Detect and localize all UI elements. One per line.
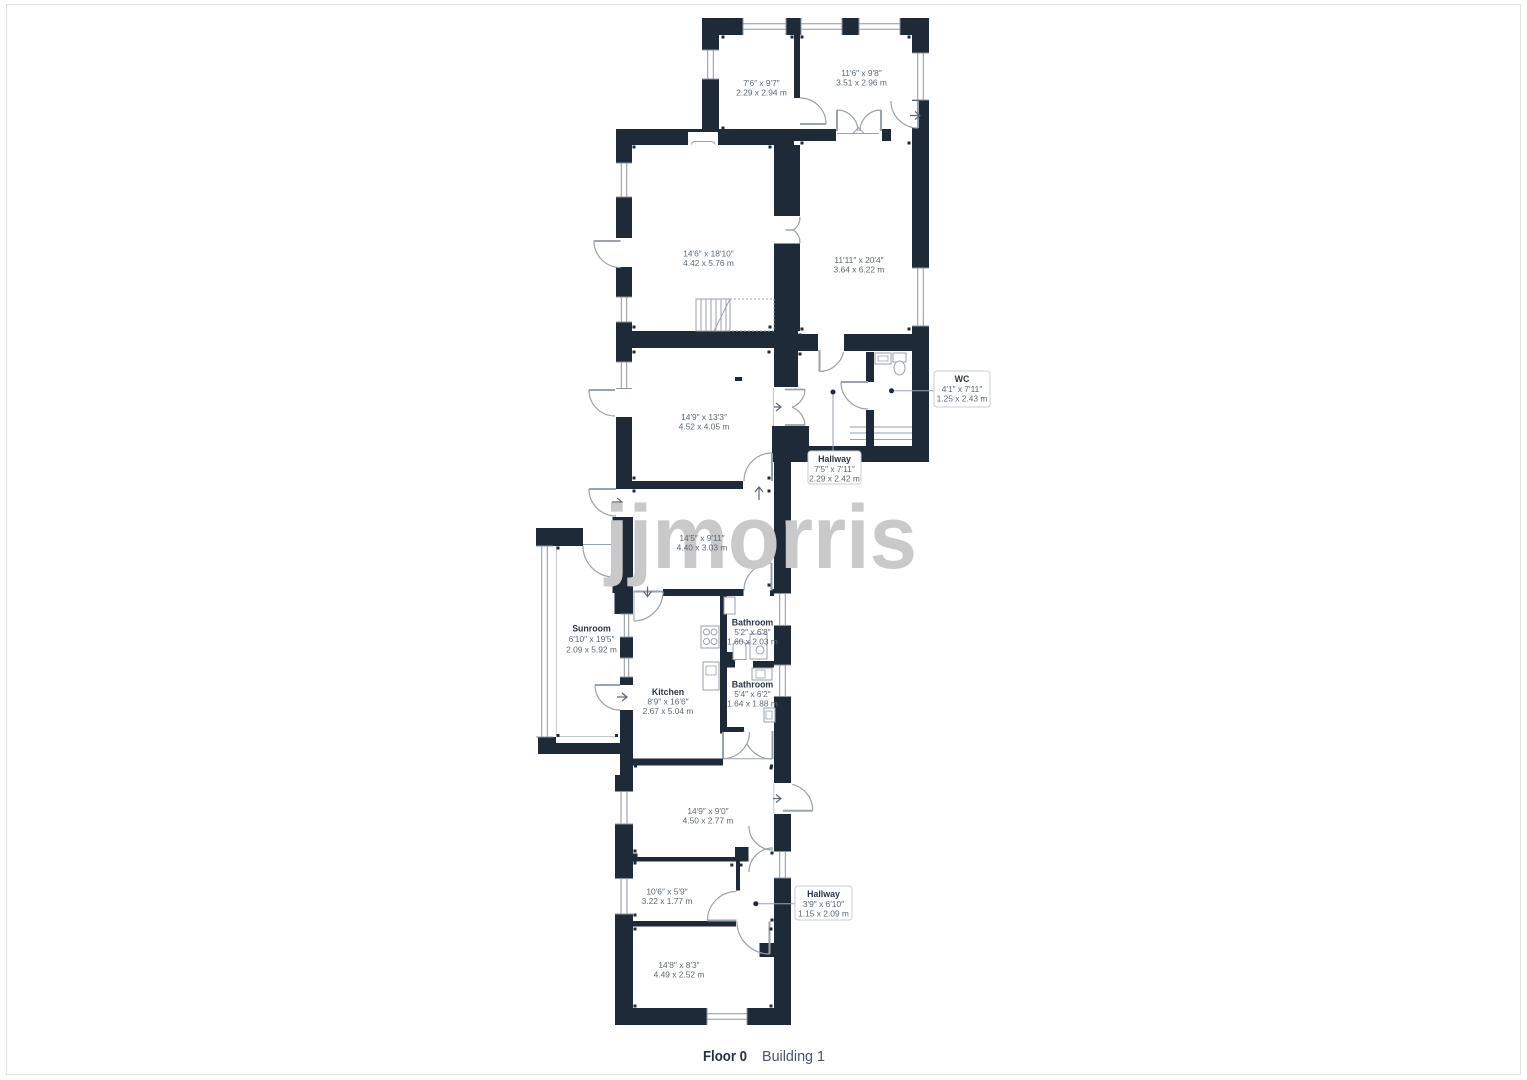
svg-text:11′6″ x 9′8″: 11′6″ x 9′8″ <box>841 68 882 78</box>
svg-text:3.22 x 1.77 m: 3.22 x 1.77 m <box>642 896 693 906</box>
svg-text:5′2″ x 6′8″: 5′2″ x 6′8″ <box>734 627 771 637</box>
svg-text:7′6″ x 9′7″: 7′6″ x 9′7″ <box>743 78 780 88</box>
svg-text:14′9″ x 9′0″: 14′9″ x 9′0″ <box>687 806 728 816</box>
svg-text:Floor 0: Floor 0 <box>703 1049 747 1065</box>
svg-text:14′9″ x 13′3″: 14′9″ x 13′3″ <box>681 412 727 422</box>
svg-text:Hallway: Hallway <box>807 889 840 899</box>
svg-text:4.42 x 5.76 m: 4.42 x 5.76 m <box>683 258 734 268</box>
svg-text:3′9″ x 6′10″: 3′9″ x 6′10″ <box>803 899 844 909</box>
svg-text:3.51 x 2.96 m: 3.51 x 2.96 m <box>836 78 887 88</box>
svg-text:8′9″ x 16′6″: 8′9″ x 16′6″ <box>647 697 688 707</box>
svg-text:Hallway: Hallway <box>818 454 851 464</box>
svg-text:5′4″ x 6′2″: 5′4″ x 6′2″ <box>734 689 771 699</box>
svg-text:11′11″ x 20′4″: 11′11″ x 20′4″ <box>834 255 883 265</box>
svg-text:7′5″ x 7′11″: 7′5″ x 7′11″ <box>814 464 855 474</box>
svg-text:Sunroom: Sunroom <box>572 624 611 634</box>
svg-text:4.50 x 2.77 m: 4.50 x 2.77 m <box>683 816 734 826</box>
svg-text:2.29 x 2.42 m: 2.29 x 2.42 m <box>809 474 860 484</box>
svg-text:4′1″ x 7′11″: 4′1″ x 7′11″ <box>942 384 983 394</box>
svg-text:3.64 x 6.22 m: 3.64 x 6.22 m <box>834 265 885 275</box>
svg-text:1.64 x 1.88 m: 1.64 x 1.88 m <box>727 699 778 709</box>
svg-text:10′6″ x 5′9″: 10′6″ x 5′9″ <box>646 887 687 897</box>
svg-text:1.25 x 2.43 m: 1.25 x 2.43 m <box>937 394 988 404</box>
svg-text:WC: WC <box>955 374 970 384</box>
svg-text:4.40 x 3.03 m: 4.40 x 3.03 m <box>677 543 728 553</box>
svg-text:Kitchen: Kitchen <box>652 687 684 697</box>
svg-text:Bathroom: Bathroom <box>732 680 774 690</box>
svg-text:4.52 x 4.05 m: 4.52 x 4.05 m <box>679 422 730 432</box>
svg-text:jjmorris: jjmorris <box>603 488 917 588</box>
svg-text:Building 1: Building 1 <box>762 1049 825 1065</box>
svg-text:1.15 x 2.09 m: 1.15 x 2.09 m <box>798 909 849 919</box>
svg-text:6′10″ x 19′5″: 6′10″ x 19′5″ <box>569 634 615 644</box>
svg-text:2.29 x 2.94 m: 2.29 x 2.94 m <box>736 88 787 98</box>
svg-text:2.09 x 5.92 m: 2.09 x 5.92 m <box>566 645 617 655</box>
svg-text:4.49 x 2.52 m: 4.49 x 2.52 m <box>654 970 705 980</box>
svg-text:14′5″ x 9′11″: 14′5″ x 9′11″ <box>679 533 724 543</box>
svg-text:2.67 x 5.04 m: 2.67 x 5.04 m <box>643 706 694 716</box>
svg-text:14′6″ x 18′10″: 14′6″ x 18′10″ <box>683 249 734 259</box>
svg-text:Bathroom: Bathroom <box>732 618 774 628</box>
svg-text:14′8″ x 8′3″: 14′8″ x 8′3″ <box>658 960 699 970</box>
svg-text:1.60 x 2.03 m: 1.60 x 2.03 m <box>727 637 778 647</box>
